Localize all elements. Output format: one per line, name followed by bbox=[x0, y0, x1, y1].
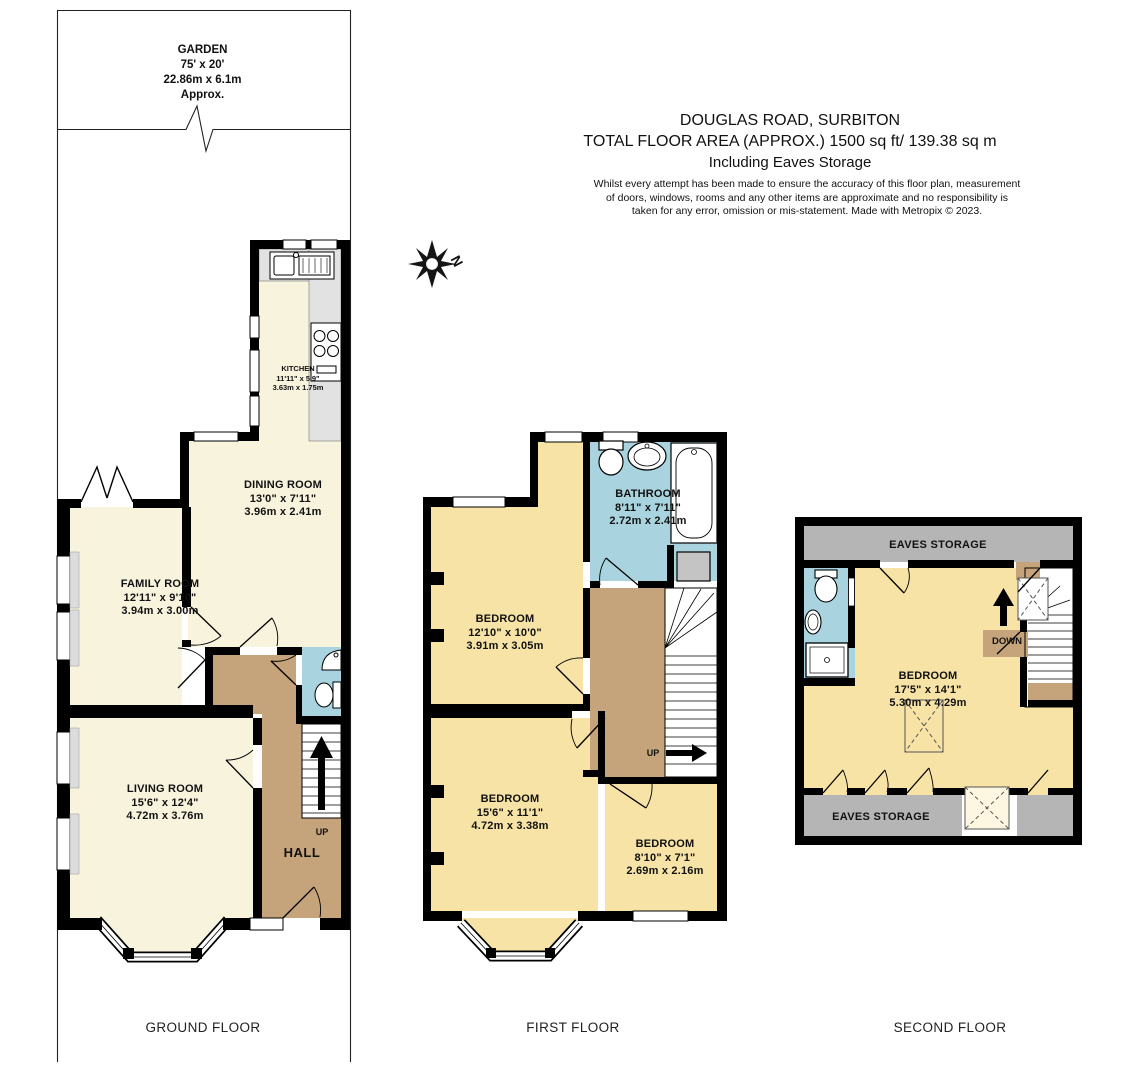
first-floor-caption: FIRST FLOOR bbox=[498, 1020, 648, 1035]
second-bedroom-label: BEDROOM 17'5" x 14'1" 5.30m x 4.29m bbox=[853, 670, 1003, 711]
garden-boundary-break bbox=[57, 106, 350, 151]
eaves-storage-top-label: EAVES STORAGE bbox=[863, 539, 1013, 551]
dining-room-label: DINING ROOM 13'0" x 7'11" 3.96m x 2.41m bbox=[210, 479, 356, 520]
first-up-label: UP bbox=[640, 748, 666, 758]
kitchen-sink-icon bbox=[270, 252, 334, 279]
bedroom-front-label: BEDROOM 12'10" x 10'0" 3.91m x 3.05m bbox=[430, 613, 580, 654]
bedroom-middle-label: BEDROOM 15'6" x 11'1" 4.72m x 3.38m bbox=[435, 793, 585, 834]
kitchen-label: KITCHEN 11'11" x 5'9" 3.63m x 1.75m bbox=[252, 364, 344, 393]
eaves-storage-bottom-label: EAVES STORAGE bbox=[806, 811, 956, 823]
living-room-label: LIVING ROOM 15'6" x 12'4" 4.72m x 3.76m bbox=[90, 783, 240, 824]
ground-floor-caption: GROUND FLOOR bbox=[128, 1020, 278, 1035]
title-includes: Including Eaves Storage bbox=[540, 152, 1040, 173]
family-room-label: FAMILY ROOM 12'11" x 9'10" 3.94m x 3.00m bbox=[85, 578, 235, 619]
garden-label: GARDEN 75' x 20' 22.86m x 6.1m Approx. bbox=[125, 43, 280, 103]
ground-up-label: UP bbox=[308, 827, 336, 837]
bathroom-label: BATHROOM 8'11" x 7'11" 2.72m x 2.41m bbox=[580, 488, 716, 529]
bedroom-small-label: BEDROOM 8'10" x 7'1" 2.69m x 2.16m bbox=[595, 838, 735, 879]
first-stairs bbox=[665, 588, 717, 777]
ground-stairs bbox=[302, 724, 341, 818]
cupboard bbox=[677, 552, 710, 581]
french-doors-icon bbox=[81, 467, 133, 502]
floorplan-page: GARDEN 75' x 20' 22.86m x 6.1m Approx. D… bbox=[0, 0, 1142, 1080]
disclaimer-text: Whilst every attempt has been made to en… bbox=[592, 178, 1022, 219]
title-area: TOTAL FLOOR AREA (APPROX.) 1500 sq ft/ 1… bbox=[540, 131, 1040, 152]
second-floor-caption: SECOND FLOOR bbox=[875, 1020, 1025, 1035]
hall-label: HALL bbox=[272, 845, 332, 860]
down-label: DOWN bbox=[981, 636, 1033, 647]
title-address: DOUGLAS ROAD, SURBITON bbox=[540, 110, 1040, 131]
toilet-icon bbox=[333, 682, 341, 708]
